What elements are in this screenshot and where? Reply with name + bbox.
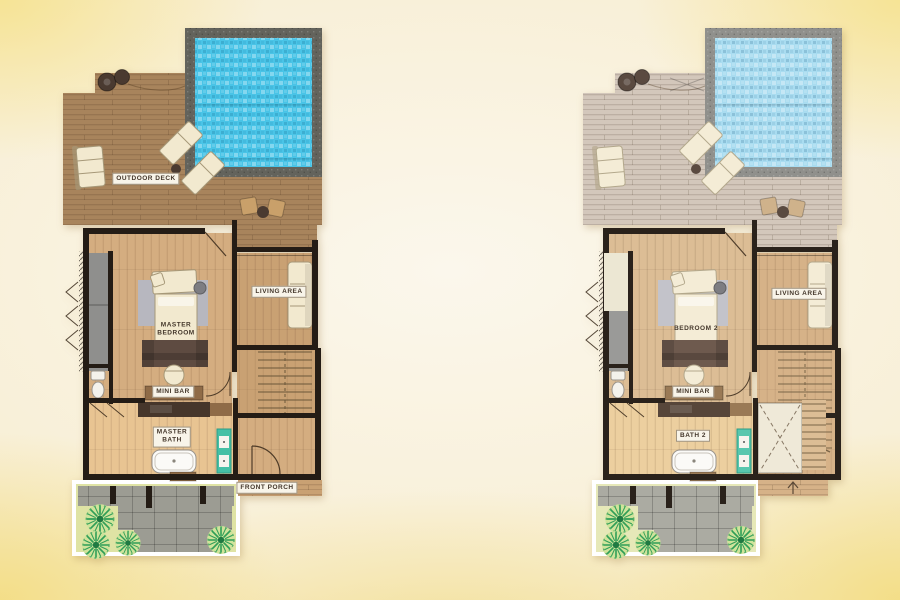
label-bath-2: BATH 2 xyxy=(676,430,710,442)
label-mini-bar-1: MINI BAR xyxy=(152,386,194,398)
floor-plans-graphic xyxy=(0,0,900,600)
label-living-area-1: LIVING AREA xyxy=(251,286,306,298)
label-outdoor-deck: OUTDOOR DECK xyxy=(112,173,179,185)
label-mini-bar-2: MINI BAR xyxy=(672,386,714,398)
label-living-area-2: LIVING AREA xyxy=(771,288,826,300)
label-front-porch: FRONT PORCH xyxy=(236,482,297,494)
label-master-bath: MASTER BATH xyxy=(153,427,191,448)
label-bedroom-2: BEDROOM 2 xyxy=(671,324,721,334)
closet-panel xyxy=(604,253,628,311)
floor-plan-scene: OUTDOOR DECK LIVING AREA MASTER BEDROOM … xyxy=(0,0,900,600)
label-master-bedroom: MASTER BEDROOM xyxy=(154,321,197,340)
